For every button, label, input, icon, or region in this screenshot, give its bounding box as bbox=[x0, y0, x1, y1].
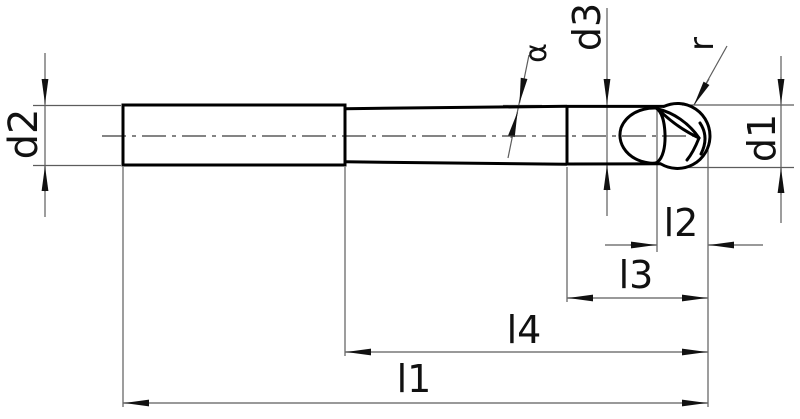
label-alpha: α bbox=[519, 43, 554, 63]
tip-edge-thickening bbox=[700, 123, 705, 154]
label-l1: l1 bbox=[397, 357, 432, 401]
tip-flute-edge bbox=[687, 138, 699, 160]
r-leader-arrow bbox=[694, 79, 709, 105]
label-r: r bbox=[682, 37, 722, 51]
label-l4: l4 bbox=[507, 308, 542, 352]
technical-drawing-canvas: d2 d3 α r d1 l2 l3 l4 l1 bbox=[0, 0, 800, 419]
label-l3: l3 bbox=[619, 253, 654, 297]
end-mill-dimension-drawing: d2 d3 α r d1 l2 l3 l4 l1 bbox=[0, 0, 800, 419]
cutter-outline bbox=[123, 103, 710, 168]
neck-bottom-edge bbox=[345, 162, 567, 165]
alpha-arrow-upper bbox=[520, 79, 525, 103]
dimension-labels: d2 d3 α r d1 l2 l3 l4 l1 bbox=[1, 3, 784, 401]
label-l2: l2 bbox=[664, 201, 699, 245]
label-d3: d3 bbox=[565, 3, 609, 51]
shank-outline bbox=[123, 105, 345, 165]
neck-top-edge bbox=[345, 106, 567, 108]
alpha-arrow-lower bbox=[511, 112, 518, 138]
label-d2: d2 bbox=[1, 109, 47, 160]
label-d1: d1 bbox=[740, 114, 784, 162]
